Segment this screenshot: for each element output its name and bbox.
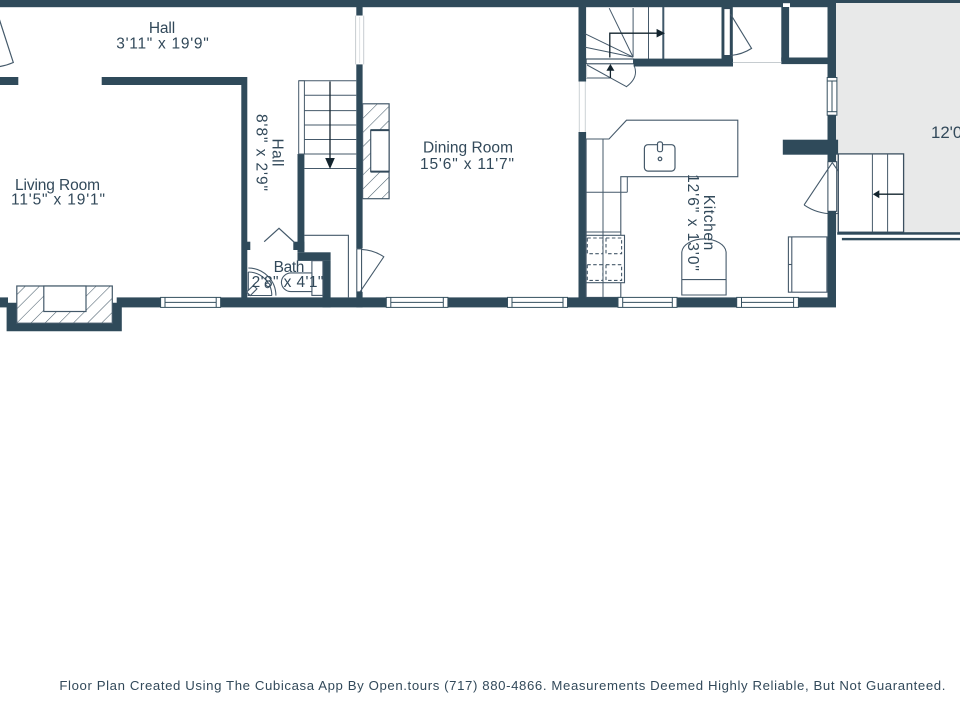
svg-text:Kitchen: Kitchen [700, 195, 717, 251]
svg-text:Floor Plan Created Using The C: Floor Plan Created Using The Cubicasa Ap… [59, 678, 945, 693]
svg-text:3'11" x 19'9": 3'11" x 19'9" [116, 35, 209, 52]
svg-text:12'0" x 1: 12'0" x 1 [931, 123, 960, 142]
svg-text:11'5" x 19'1": 11'5" x 19'1" [11, 192, 105, 209]
svg-text:Hall: Hall [149, 20, 175, 37]
svg-text:2'8" x 4'1": 2'8" x 4'1" [252, 274, 324, 291]
svg-text:8'8" x 2'9": 8'8" x 2'9" [253, 114, 270, 191]
svg-text:12'6" x 13'0": 12'6" x 13'0" [684, 174, 701, 271]
svg-text:15'6" x 11'7": 15'6" x 11'7" [420, 156, 514, 173]
svg-text:Hall: Hall [269, 139, 286, 167]
svg-text:Dining Room: Dining Room [423, 139, 513, 156]
